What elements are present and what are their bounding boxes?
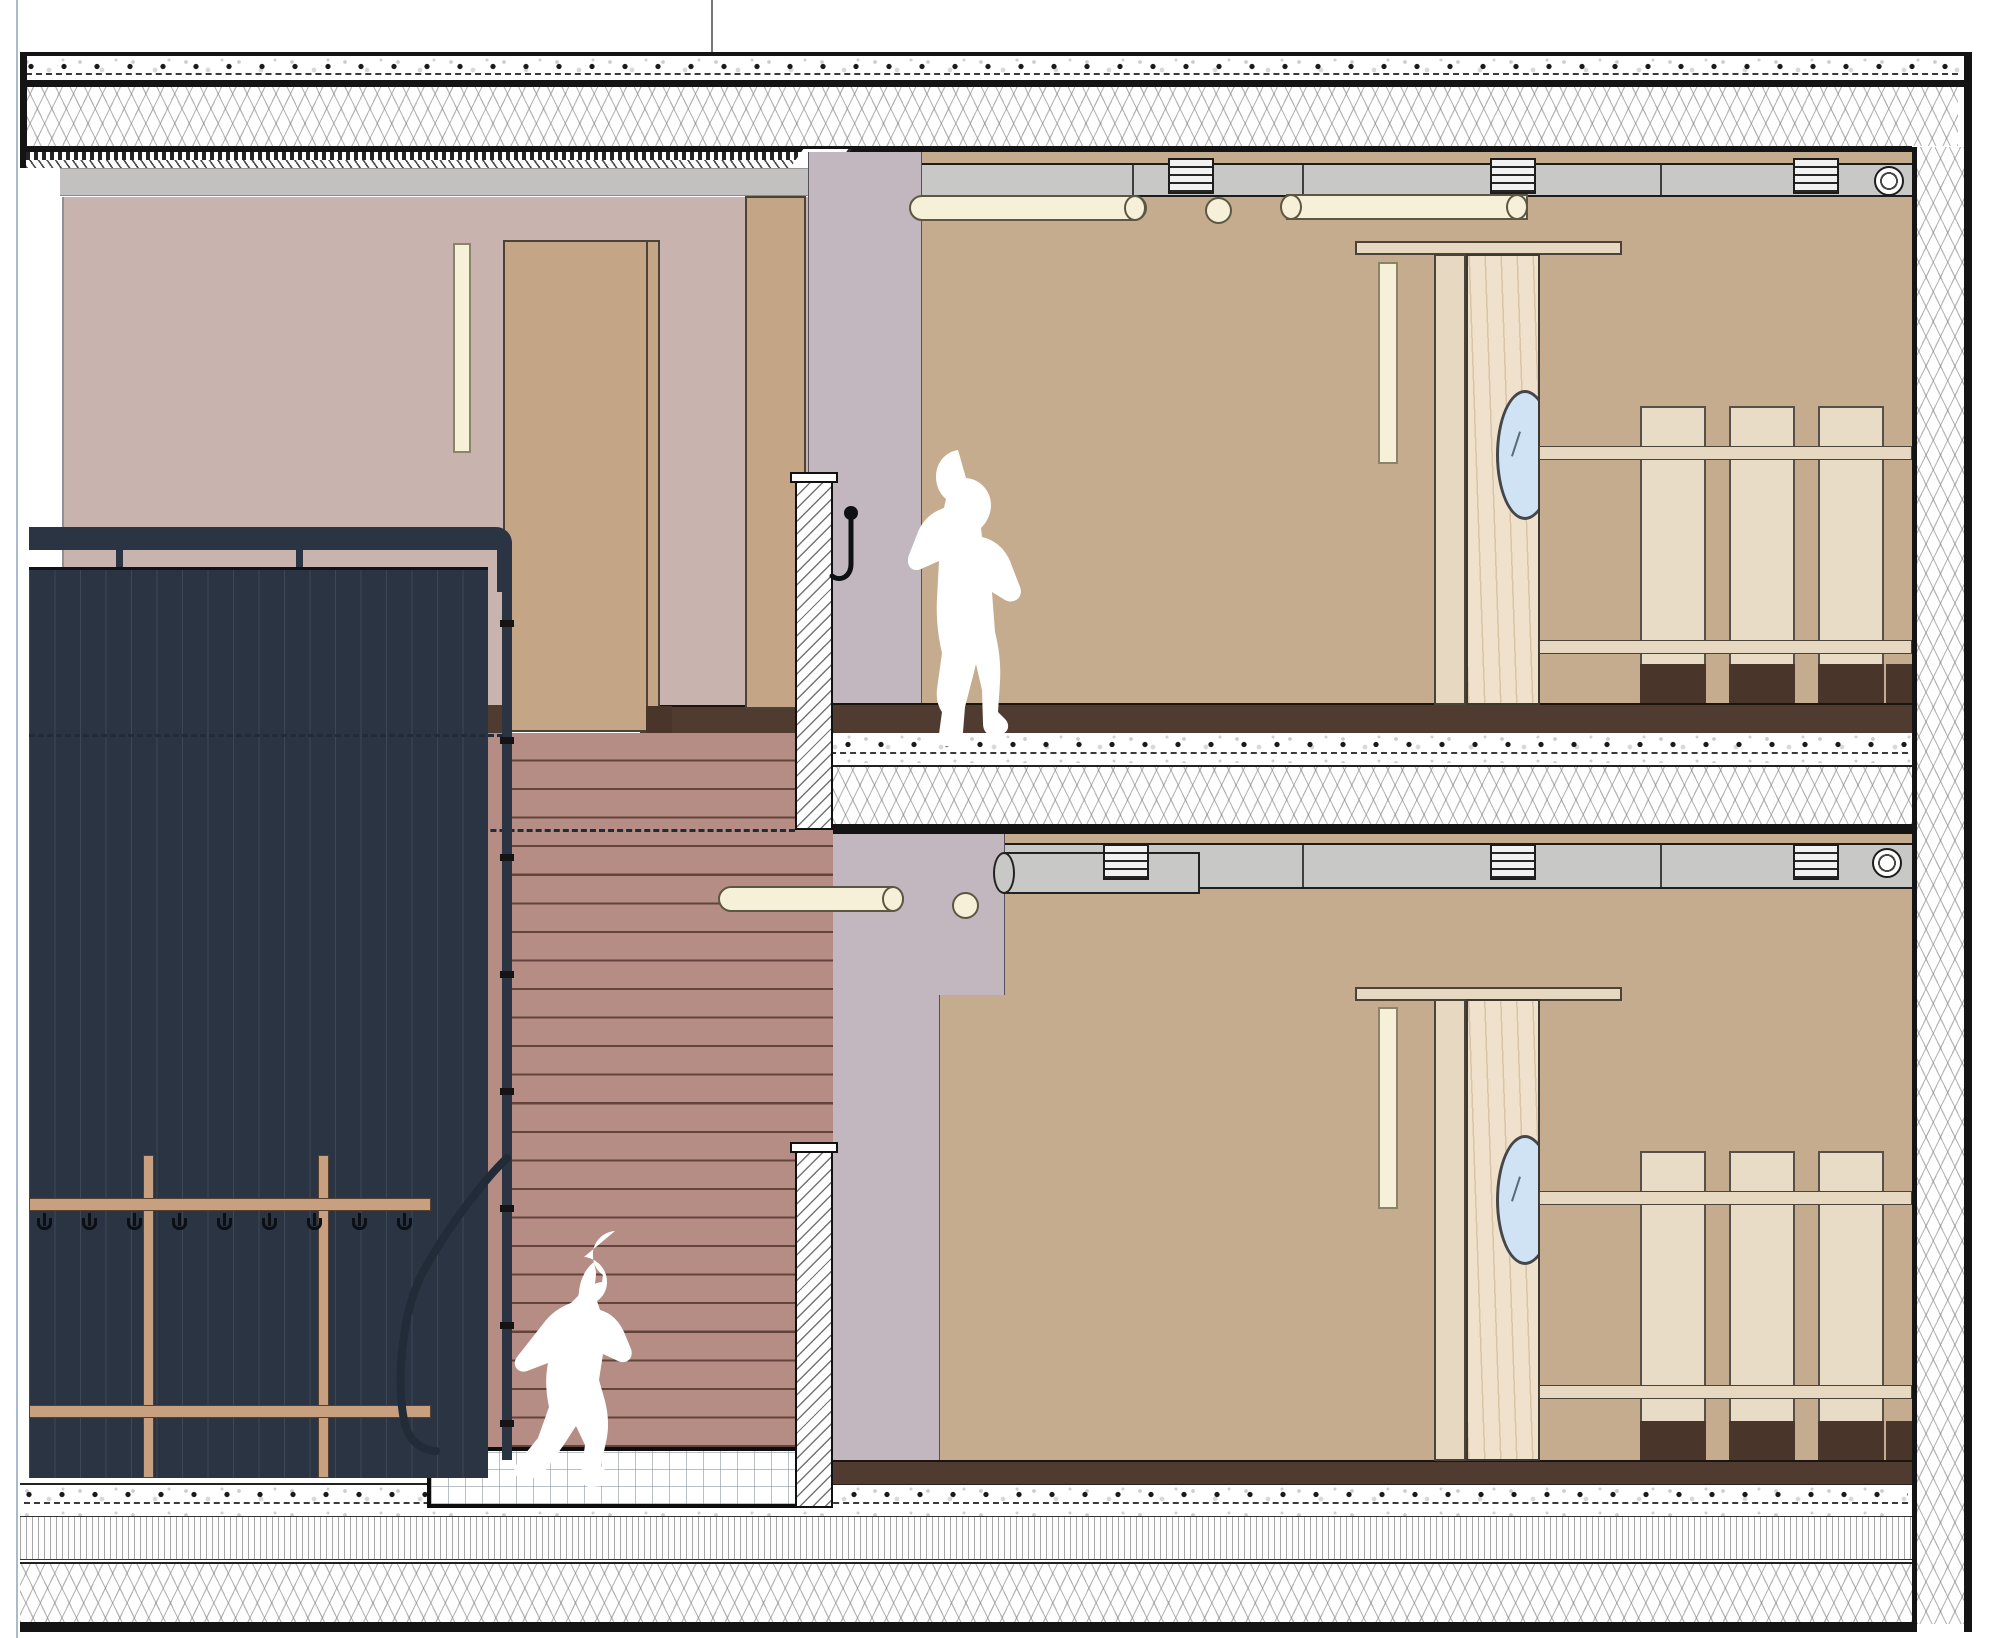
stair-handrail-curve [401, 1158, 507, 1451]
handrail-bracket-hook [832, 519, 851, 579]
figures-overlay [0, 0, 2000, 1638]
child-walking-silhouette [908, 450, 1021, 746]
girl-ponytail-silhouette [514, 1231, 631, 1487]
section-drawing [0, 0, 2000, 1638]
